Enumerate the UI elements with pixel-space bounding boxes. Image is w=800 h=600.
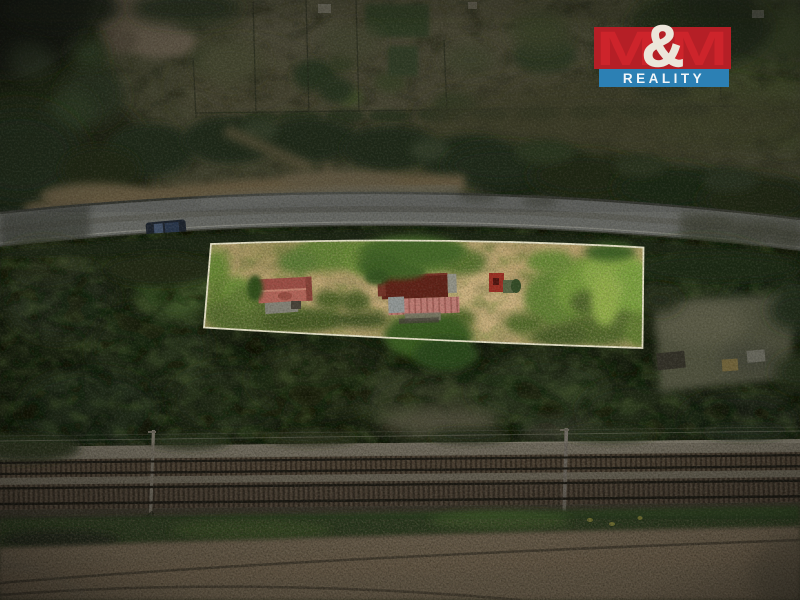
svg-text:REALITY: REALITY [623, 71, 705, 86]
